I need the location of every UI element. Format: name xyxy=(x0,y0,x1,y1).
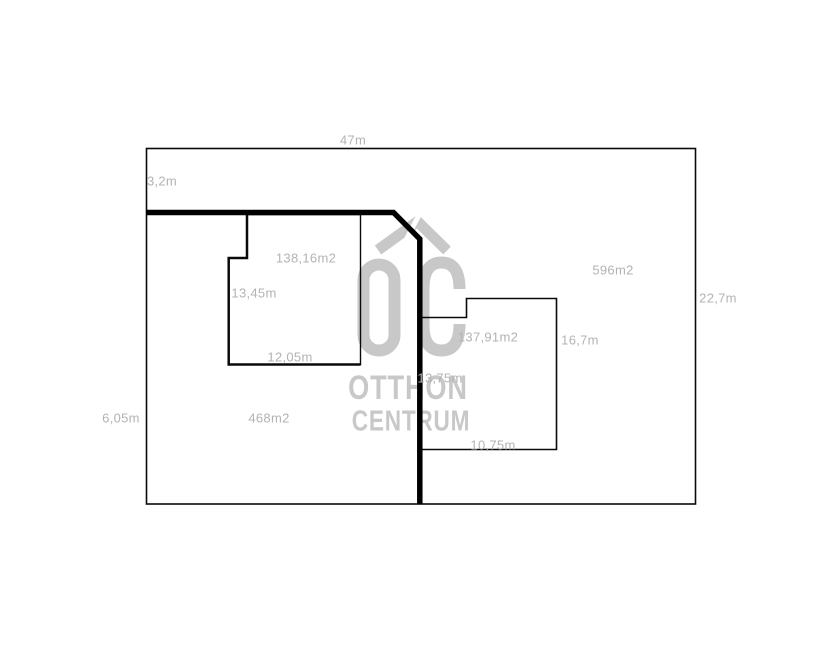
label-building-right-side: 16,7m xyxy=(561,333,599,348)
floor-plan-drawing xyxy=(0,0,828,656)
oc-logo-letter-o xyxy=(364,265,395,351)
label-plot-left-side: 6,05m xyxy=(102,411,140,426)
label-plot-left-area: 468m2 xyxy=(248,411,289,426)
label-building-right-area: 137,91m2 xyxy=(458,330,518,345)
label-building-left-width: 12,05m xyxy=(267,350,312,365)
label-plot-right-side: 22,7m xyxy=(699,291,737,306)
label-plot-top-width: 47m xyxy=(340,133,366,148)
label-building-left-height: 13,45m xyxy=(231,286,276,301)
label-building-right-left-side: 13,75m xyxy=(417,371,462,386)
site-plan-canvas: OTTHON CENTRUM 47m 3,2m 138,16m2 13,45m … xyxy=(0,0,828,656)
label-plot-top-strip: 3,2m xyxy=(147,174,177,189)
label-building-right-width: 10,75m xyxy=(470,438,515,453)
oc-logo-letter-c xyxy=(424,263,460,351)
label-building-left-area: 138,16m2 xyxy=(276,251,336,266)
label-plot-right-area: 596m2 xyxy=(592,263,633,278)
